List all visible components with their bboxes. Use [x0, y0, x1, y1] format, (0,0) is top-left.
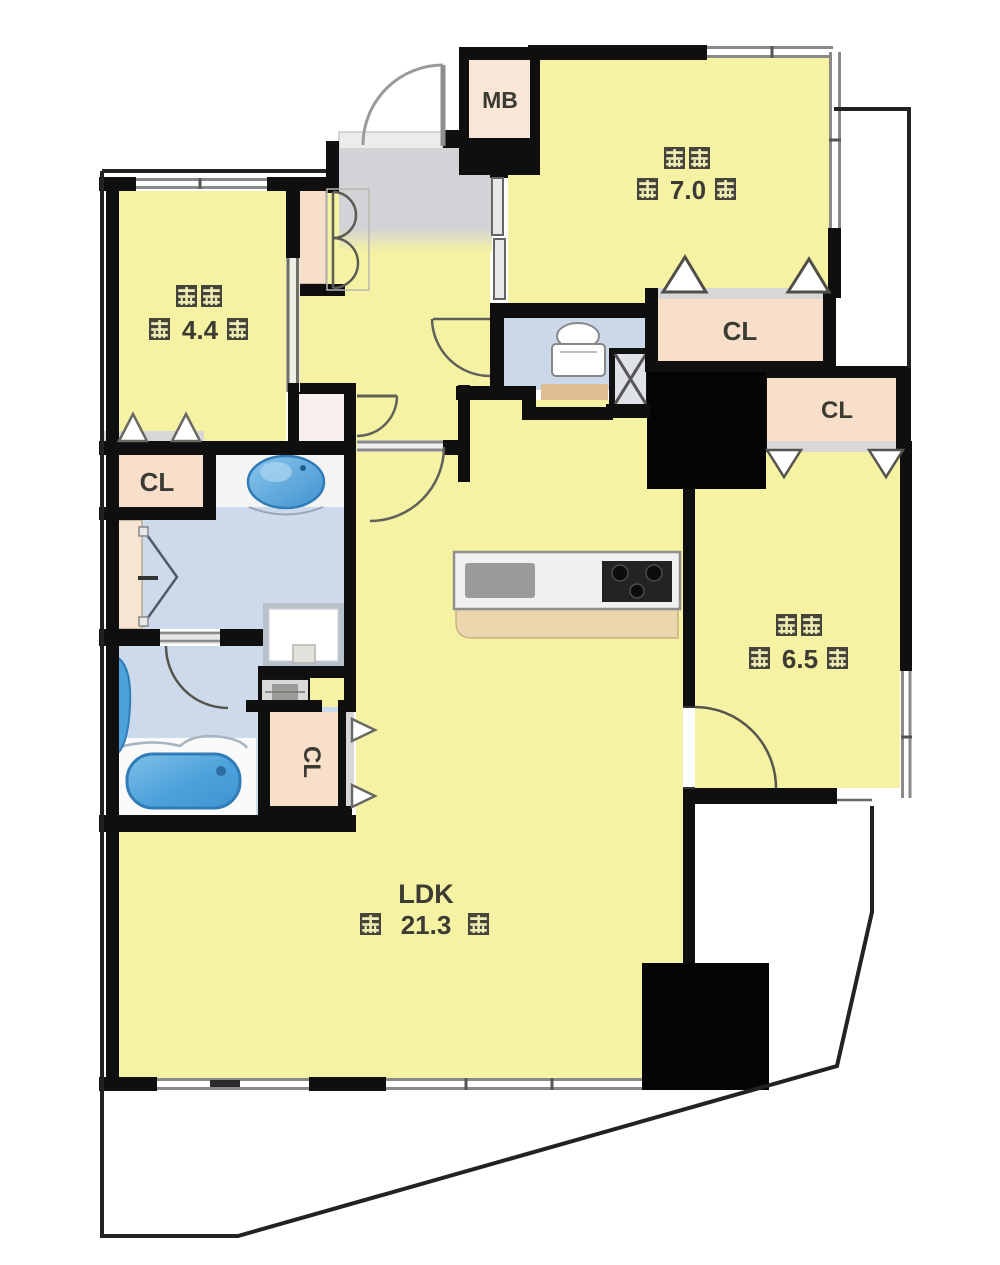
- svg-text:7.0: 7.0: [670, 175, 706, 205]
- svg-text:CL: CL: [298, 746, 325, 778]
- svg-text:4.4: 4.4: [182, 315, 219, 345]
- svg-text:CL: CL: [821, 397, 853, 424]
- svg-text:LDK: LDK: [398, 879, 454, 909]
- svg-text:CL: CL: [723, 316, 758, 346]
- svg-text:6.5: 6.5: [782, 644, 818, 674]
- svg-text:CL: CL: [140, 467, 175, 497]
- svg-text:21.3: 21.3: [401, 910, 452, 940]
- svg-text:MB: MB: [482, 87, 518, 113]
